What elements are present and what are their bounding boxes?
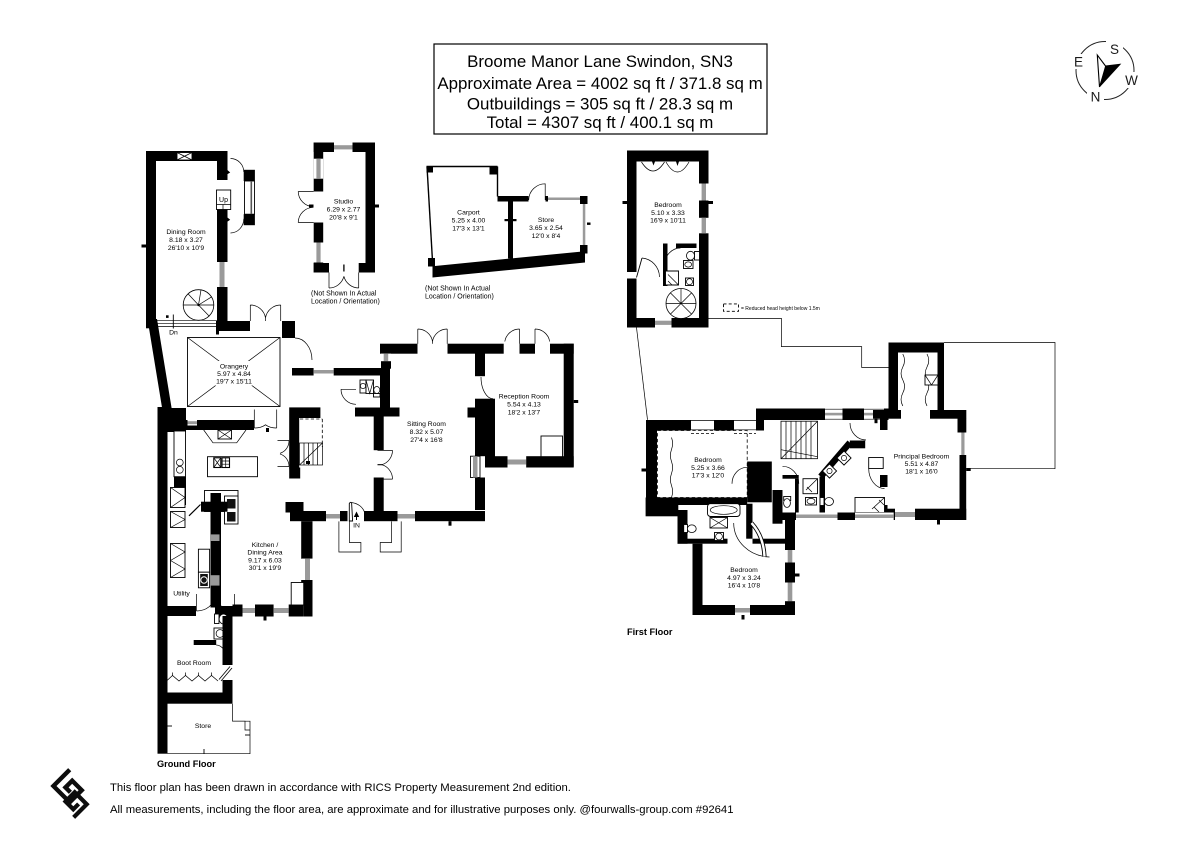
- svg-text:5.97 x 4.84: 5.97 x 4.84: [217, 371, 251, 378]
- svg-text:Broome Manor Lane Swindon, SN3: Broome Manor Lane Swindon, SN3: [467, 52, 733, 71]
- svg-text:4.97 x 3.24: 4.97 x 3.24: [727, 575, 761, 582]
- svg-text:Kitchen /: Kitchen /: [252, 542, 279, 549]
- svg-text:Boot Room: Boot Room: [177, 660, 211, 667]
- svg-text:17'3 x 13'1: 17'3 x 13'1: [452, 226, 485, 233]
- svg-text:20'8 x 9'1: 20'8 x 9'1: [329, 215, 358, 222]
- svg-text:5.10 x 3.33: 5.10 x 3.33: [651, 210, 685, 217]
- svg-text:18'2 x 13'7: 18'2 x 13'7: [508, 409, 541, 416]
- svg-text:= Reduced head height below 1.: = Reduced head height below 1.5m: [741, 306, 820, 312]
- svg-text:5.25 x 3.66: 5.25 x 3.66: [691, 465, 725, 472]
- svg-text:Orangery: Orangery: [220, 364, 249, 371]
- svg-text:Bedroom: Bedroom: [730, 567, 758, 574]
- svg-text:W: W: [1125, 73, 1138, 88]
- svg-text:5.25 x 4.00: 5.25 x 4.00: [452, 218, 486, 225]
- svg-text:6.29 x 2.77: 6.29 x 2.77: [327, 207, 361, 214]
- svg-text:E: E: [1074, 55, 1083, 70]
- svg-text:8.18 x 3.27: 8.18 x 3.27: [169, 237, 203, 244]
- svg-text:Location / Orientation): Location / Orientation): [425, 294, 494, 301]
- svg-text:All measurements, including th: All measurements, including the floor ar…: [110, 804, 734, 816]
- svg-text:(Not Shown In Actual: (Not Shown In Actual: [311, 291, 377, 298]
- svg-text:30'1 x 19'9: 30'1 x 19'9: [249, 565, 282, 572]
- svg-text:(Not Shown In Actual: (Not Shown In Actual: [425, 286, 491, 293]
- svg-text:8.32 x 5.07: 8.32 x 5.07: [410, 429, 444, 436]
- svg-text:Store: Store: [195, 723, 211, 730]
- svg-text:Approximate Area = 4002 sq ft: Approximate Area = 4002 sq ft / 371.8 sq…: [437, 74, 762, 93]
- svg-text:Bedroom: Bedroom: [654, 202, 682, 209]
- svg-text:Dining Area: Dining Area: [247, 550, 282, 557]
- svg-text:19'7 x 15'11: 19'7 x 15'11: [216, 379, 252, 386]
- svg-text:Studio: Studio: [334, 199, 353, 206]
- svg-text:First Floor: First Floor: [627, 627, 673, 637]
- svg-text:Outbuildings = 305 sq ft / 28.: Outbuildings = 305 sq ft / 28.3 sq m: [467, 95, 733, 114]
- svg-text:16'4 x 10'8: 16'4 x 10'8: [728, 583, 761, 590]
- svg-text:Total = 4307 sq ft / 400.1 sq: Total = 4307 sq ft / 400.1 sq m: [487, 113, 714, 132]
- svg-text:5.51 x 4.87: 5.51 x 4.87: [905, 461, 939, 468]
- svg-text:Location / Orientation): Location / Orientation): [311, 299, 380, 306]
- svg-text:N: N: [1091, 90, 1101, 105]
- svg-text:Dn: Dn: [169, 330, 178, 337]
- svg-text:S: S: [1110, 42, 1119, 57]
- svg-text:Bedroom: Bedroom: [694, 457, 722, 464]
- svg-text:Carport: Carport: [457, 210, 480, 217]
- svg-text:17'3 x 12'0: 17'3 x 12'0: [692, 473, 725, 480]
- svg-text:18'1 x 16'0: 18'1 x 16'0: [905, 469, 938, 476]
- svg-text:Dining Room: Dining Room: [166, 229, 206, 236]
- svg-text:3.65 x 2.54: 3.65 x 2.54: [529, 225, 563, 232]
- svg-text:16'9 x 10'11: 16'9 x 10'11: [650, 218, 686, 225]
- svg-text:Principal Bedroom: Principal Bedroom: [894, 453, 950, 460]
- svg-text:This floor plan has been drawn: This floor plan has been drawn in accord…: [110, 782, 571, 794]
- svg-text:12'0 x 8'4: 12'0 x 8'4: [532, 233, 561, 240]
- svg-text:Sitting Room: Sitting Room: [407, 421, 446, 428]
- svg-text:Up: Up: [219, 197, 228, 204]
- svg-text:Reception Room: Reception Room: [499, 393, 550, 400]
- svg-text:Store: Store: [538, 217, 554, 224]
- svg-text:5.54 x 4.13: 5.54 x 4.13: [507, 401, 541, 408]
- svg-text:Utility: Utility: [173, 591, 190, 598]
- svg-text:27'4 x 16'8: 27'4 x 16'8: [410, 437, 443, 444]
- svg-text:9.17 x 6.03: 9.17 x 6.03: [248, 557, 282, 564]
- svg-text:Ground Floor: Ground Floor: [157, 759, 216, 769]
- svg-text:IN: IN: [353, 523, 360, 530]
- svg-text:26'10 x 10'9: 26'10 x 10'9: [168, 245, 204, 252]
